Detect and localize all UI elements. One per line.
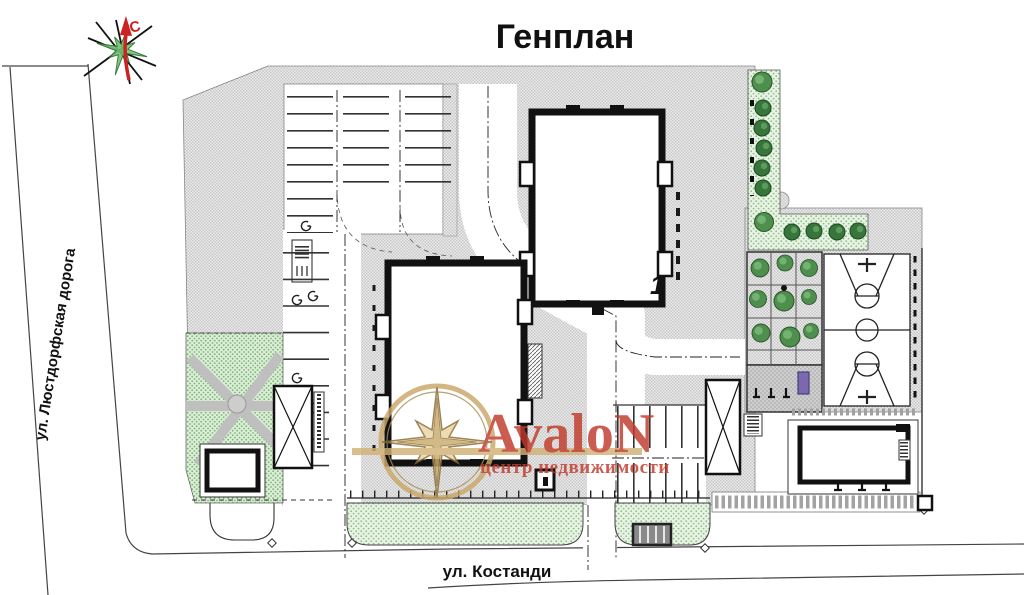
survey-marker-icon	[268, 539, 276, 547]
driveway-loop	[210, 498, 274, 540]
building-1-label: 1	[650, 270, 664, 300]
compass-rose-icon: С	[84, 16, 156, 84]
brand-name: AvaloN	[478, 403, 654, 465]
entrance-gate	[633, 524, 671, 545]
hedge-icon	[756, 140, 772, 156]
hedge-icon	[784, 224, 800, 240]
tree-icon	[751, 259, 769, 277]
tree-icon	[752, 72, 772, 92]
sidewalk	[712, 492, 932, 512]
tree-icon	[774, 291, 794, 311]
hedge-icon	[754, 160, 770, 176]
playground-strip	[747, 365, 822, 412]
street-left-edge-inner	[88, 64, 152, 554]
parking-top-lot	[284, 84, 443, 234]
sidewalk-end-post	[918, 496, 932, 510]
hedge-icon	[850, 223, 866, 239]
building-3-corner	[896, 424, 910, 432]
lot-divider	[443, 84, 457, 236]
north-arrow-shaft	[125, 34, 129, 80]
building-3-walls	[800, 428, 908, 482]
street-left: ул. Люстдорфская дорога	[2, 64, 152, 595]
plan-title: Генплан	[496, 18, 635, 56]
service-building-walls	[207, 451, 258, 490]
tree-icon	[755, 213, 774, 232]
basketball-court	[824, 254, 910, 406]
play-equipment-purple	[798, 372, 809, 394]
tree-icon	[801, 260, 818, 277]
hedge-icon	[755, 180, 771, 196]
tree-icon	[804, 324, 819, 339]
tree-icon	[750, 291, 767, 308]
tree-icon	[780, 327, 800, 347]
street-label-left: ул. Люстдорфская дорога	[32, 246, 79, 441]
genplan-page: ул. Люстдорфская дорога ул. Костанди	[0, 0, 1024, 595]
building-3	[788, 412, 918, 494]
street-left-edge-outer	[10, 67, 48, 595]
path-circle	[228, 395, 246, 413]
lawn-strip-1	[347, 503, 583, 545]
building-1-walls	[532, 112, 662, 304]
entry-porch-mark	[543, 477, 548, 486]
street-label-bottom: ул. Костанди	[443, 562, 552, 581]
brand-star-icon	[381, 386, 493, 498]
green-strip-topright	[748, 70, 868, 250]
building-2-ramp	[528, 344, 542, 398]
tree-icon	[752, 324, 770, 342]
hedge-icon	[754, 120, 770, 136]
hedge-icon	[755, 100, 771, 116]
tree-icon	[777, 255, 793, 271]
site-plan-canvas: ул. Люстдорфская дорога ул. Костанди	[0, 0, 1024, 595]
playground-post	[781, 285, 787, 291]
survey-marker-icon	[701, 544, 709, 552]
playground	[747, 252, 822, 412]
hedge-icon	[829, 224, 845, 240]
brand-tagline: центр недвижимости	[480, 457, 670, 478]
building-1: 1	[520, 105, 678, 315]
hedge-icon	[806, 223, 822, 239]
tree-icon	[802, 290, 817, 305]
